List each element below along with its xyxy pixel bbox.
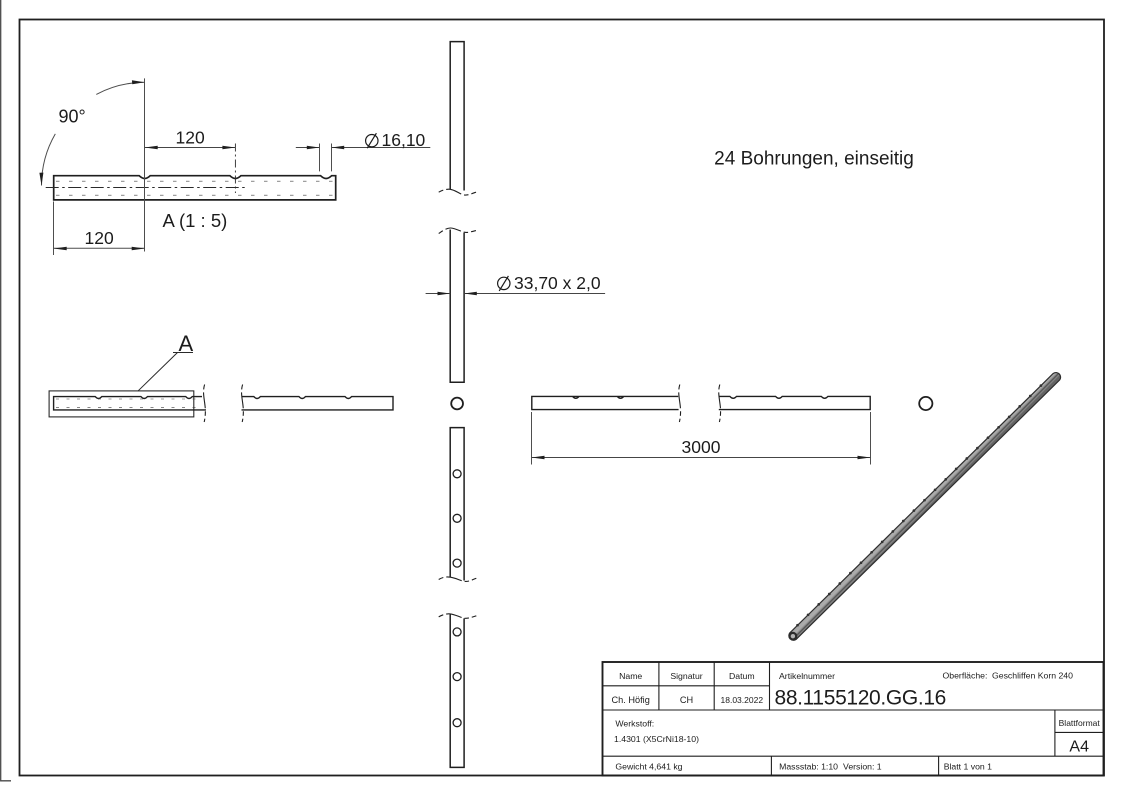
svg-text:120: 120 bbox=[176, 128, 205, 148]
svg-text:Werkstoff:: Werkstoff: bbox=[615, 718, 654, 728]
svg-text:Datum: Datum bbox=[729, 671, 755, 681]
svg-text:Massstab: 1:10: Massstab: 1:10 bbox=[779, 762, 838, 772]
svg-text:A (1 : 5): A (1 : 5) bbox=[163, 210, 228, 231]
svg-text:Blatt 1 von 1: Blatt 1 von 1 bbox=[944, 762, 992, 772]
svg-text:16,10: 16,10 bbox=[382, 130, 426, 150]
svg-text:90°: 90° bbox=[59, 107, 86, 127]
svg-text:3000: 3000 bbox=[682, 437, 721, 457]
svg-text:1.4301 (X5CrNi18-10): 1.4301 (X5CrNi18-10) bbox=[614, 734, 699, 744]
svg-text:Oberfläche:: Oberfläche: bbox=[943, 671, 988, 681]
svg-text:Version: 1: Version: 1 bbox=[843, 762, 882, 772]
svg-text:24 Bohrungen, einseitig: 24 Bohrungen, einseitig bbox=[714, 149, 914, 170]
svg-text:CH: CH bbox=[680, 695, 693, 705]
svg-text:Blattformat: Blattformat bbox=[1059, 718, 1101, 728]
svg-text:Artikelnummer: Artikelnummer bbox=[779, 671, 835, 681]
svg-text:A: A bbox=[179, 331, 194, 356]
svg-text:Gewicht 4,641 kg: Gewicht 4,641 kg bbox=[615, 762, 682, 772]
svg-text:Ch. Höfig: Ch. Höfig bbox=[612, 695, 650, 705]
svg-text:A4: A4 bbox=[1069, 739, 1089, 756]
svg-text:33,70 x 2,0: 33,70 x 2,0 bbox=[514, 273, 601, 293]
svg-text:Signatur: Signatur bbox=[670, 671, 702, 681]
svg-text:88.1155120.GG.16: 88.1155120.GG.16 bbox=[775, 687, 947, 710]
svg-text:18.03.2022: 18.03.2022 bbox=[721, 695, 764, 705]
svg-text:120: 120 bbox=[85, 228, 114, 248]
svg-text:Name: Name bbox=[619, 671, 642, 681]
svg-text:Geschliffen Korn 240: Geschliffen Korn 240 bbox=[992, 671, 1073, 681]
